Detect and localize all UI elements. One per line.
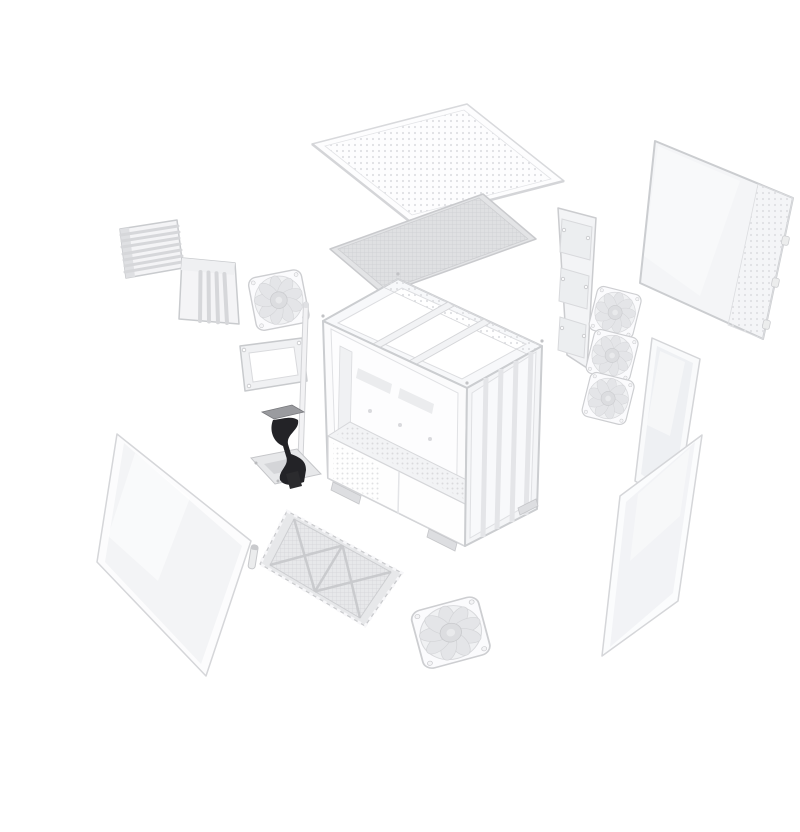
chassis: Main chassis frame with PSU shroud — [321, 272, 543, 551]
side-panel-steel: Steel side panel with ventilated front s… — [640, 141, 793, 339]
riser-top-connector — [262, 405, 304, 419]
bottom-fan: 120 mm cooling fan (bottom) — [410, 595, 492, 670]
vertical-gpu-bracket: Vertical GPU slot bracket — [179, 258, 239, 324]
exploded-view-canvas: Steel side panel with ventilated front s… — [40, 16, 800, 816]
fan-mount-rail: Removable fan mounting rail — [558, 208, 596, 368]
psu-mount-frame: PSU mounting frame — [240, 338, 307, 391]
bottom-dust-filter: Bottom dust filter with cross brace — [260, 511, 402, 626]
rod-tip — [303, 302, 308, 308]
exploded-view-figure: Steel side panel with ventilated front s… — [40, 16, 800, 816]
shroud-seam — [398, 472, 399, 514]
hex-perforation-field — [325, 110, 551, 215]
expansion-slot-bracket: Expansion slot cover bracket — [120, 220, 183, 278]
riser-cable: PCIe riser cable with bracket — [251, 405, 321, 489]
left-fan: 120 mm cooling fan (rear) — [247, 269, 310, 332]
front-glass-panel: Tempered glass front panel — [97, 434, 251, 676]
top-panel: Perforated steel top panel — [312, 104, 564, 221]
